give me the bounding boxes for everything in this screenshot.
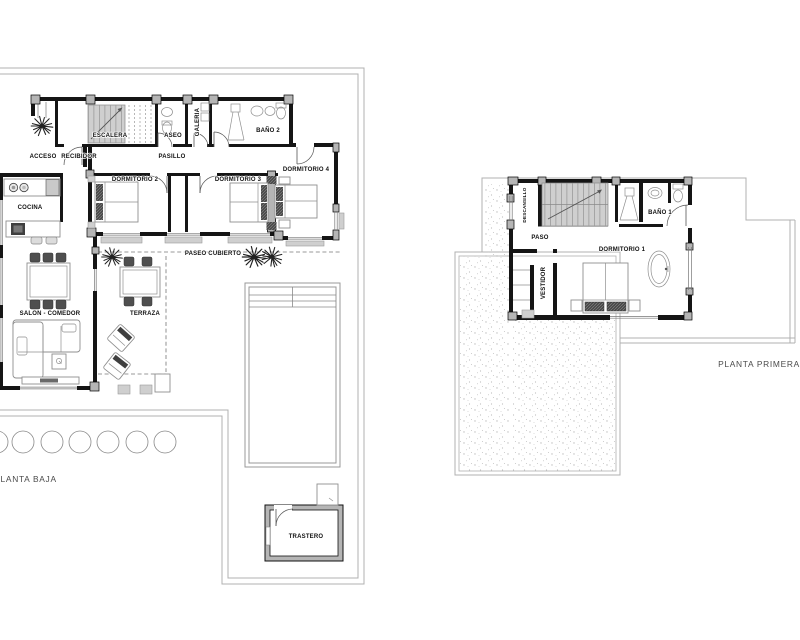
bed-dormitorio-1 xyxy=(571,263,640,313)
storage-room xyxy=(265,484,343,561)
terrace-planters xyxy=(118,374,170,394)
label-recibidor: RECIBIDOR xyxy=(61,154,97,160)
tv-sideboard xyxy=(22,377,79,384)
first-floor-plan: DESCANSILLO PASO VESTIDOR DORMITORIO 1 B… xyxy=(455,177,800,475)
caption-planta-baja: PLANTA BAJA xyxy=(0,474,57,484)
stool xyxy=(46,237,57,244)
label-cocina: COCINA xyxy=(18,205,43,211)
bed-dormitorio-4 xyxy=(275,177,317,228)
label-trastero: TRASTERO xyxy=(289,534,324,540)
bed-dormitorio-3 xyxy=(230,183,268,222)
label-salon-comedor: SALON - COMEDOR xyxy=(20,311,81,317)
first-floor-terrace xyxy=(455,184,620,475)
label-aseo: ASEO xyxy=(164,133,182,139)
terrace-table xyxy=(120,257,160,306)
label-dormitorio4: DORMITORIO 4 xyxy=(283,167,330,173)
label-escalera: ESCALERA xyxy=(93,133,128,139)
label-terraza: TERRAZA xyxy=(130,311,161,317)
floor-plan-sheet: ACCESO RECIBIDOR ESCALERA ASEO GALERIA B… xyxy=(0,0,800,640)
side-table-with-lamp xyxy=(52,354,66,369)
label-descansillo: DESCANSILLO xyxy=(522,187,527,222)
ground-floor-plan: ACCESO RECIBIDOR ESCALERA ASEO GALERIA B… xyxy=(0,68,364,584)
label-paseo-cubierto: PASEO CUBIERTO xyxy=(185,251,241,257)
dining-table xyxy=(27,253,70,309)
label-acceso: ACCESO xyxy=(30,154,57,160)
bed-dormitorio-2 xyxy=(88,176,138,228)
swimming-pool xyxy=(245,283,340,467)
galeria-appliances xyxy=(201,103,209,121)
bathroom2-fixtures xyxy=(228,103,286,140)
lounge-chair xyxy=(103,352,131,380)
aseo-fixtures xyxy=(162,108,173,135)
corner-sofa xyxy=(13,320,80,378)
stepping-stones xyxy=(0,431,176,453)
kitchen-fixtures xyxy=(4,179,60,244)
staircase-first-floor xyxy=(542,183,608,226)
label-bano2: BAÑO 2 xyxy=(256,127,280,134)
label-paso: PASO xyxy=(531,235,548,241)
caption-planta-primera: PLANTA PRIMERA xyxy=(718,359,800,369)
label-dormitorio1: DORMITORIO 1 xyxy=(599,247,646,253)
bathtub xyxy=(648,251,670,287)
label-bano1: BAÑO 1 xyxy=(648,209,672,216)
fridge xyxy=(46,180,59,196)
bathroom1-fixtures xyxy=(620,184,688,226)
label-pasillo: PASILLO xyxy=(159,154,186,160)
label-galeria: GALERIA xyxy=(195,107,201,136)
floor-plan-drawing: ACCESO RECIBIDOR ESCALERA ASEO GALERIA B… xyxy=(0,0,800,640)
stool xyxy=(31,237,42,244)
lounge-chair xyxy=(107,324,135,352)
label-vestidor: VESTIDOR xyxy=(541,266,547,299)
label-dormitorio2: DORMITORIO 2 xyxy=(112,177,159,183)
label-dormitorio3: DORMITORIO 3 xyxy=(215,177,262,183)
